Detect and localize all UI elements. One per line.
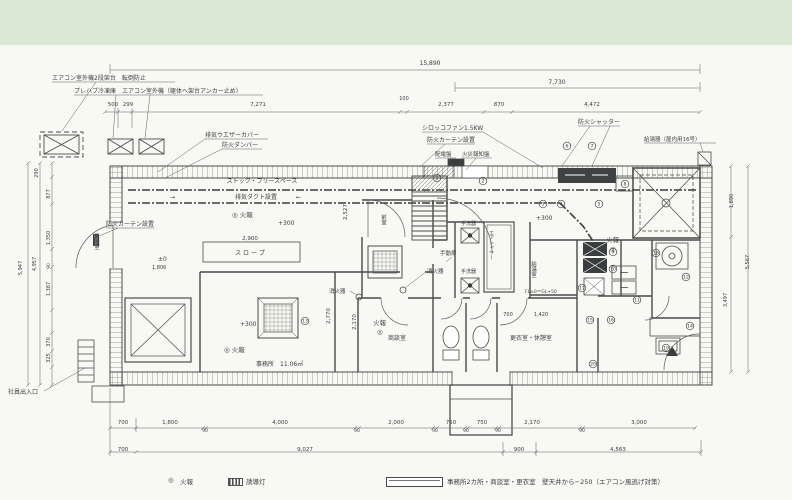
circled-number-4: 4 [557, 200, 565, 208]
dim: 2,770 [326, 308, 332, 324]
exhaust-duct-lines [128, 190, 697, 241]
fire-alarm-mark: ◎ 火報 [232, 211, 253, 219]
dim: 7,271 [250, 102, 266, 108]
svg-text:20: 20 [590, 362, 596, 368]
circled-number-3: 3 [539, 200, 547, 208]
circled-number-15: 15 [586, 316, 594, 324]
dim-overall-width: 15,890 [420, 60, 441, 67]
ac-clearance-legend-symbol [386, 477, 443, 487]
dim: 2,170 [524, 420, 540, 426]
dim: 750 [477, 420, 488, 426]
dim: 90 [46, 263, 52, 269]
dim: 900 [514, 447, 525, 453]
svg-text:18: 18 [653, 251, 659, 257]
dim: 90 [354, 428, 360, 434]
note-fire-curtain-left: 防火カーテン設置 [106, 220, 154, 228]
svg-text:9: 9 [612, 250, 615, 256]
note-staff-entrance: 社員出入口 [8, 388, 38, 396]
dim: 100 [399, 96, 409, 102]
dim: 299 [123, 102, 134, 108]
note-switchboard: 配電盤 [435, 150, 452, 158]
svg-text:7: 7 [591, 144, 594, 150]
ac-cassette-anteroom [368, 246, 402, 278]
svg-text:8: 8 [624, 182, 627, 188]
circled-number-13: 13 [301, 317, 309, 325]
dim: 9,027 [297, 447, 313, 453]
room-stock-free-space: ストック・フリースペース [227, 178, 298, 185]
note-slope: ス ロ ー プ [235, 250, 265, 257]
circled-number-17: 17 [578, 284, 586, 292]
arrow: → [170, 194, 175, 201]
level: +300 [278, 220, 295, 227]
note-fire-curtain-top: 防火カーテン設置 [427, 136, 475, 144]
fire-alarm-mark: 火報 [606, 236, 620, 244]
room-anteroom: 前室 [380, 213, 387, 226]
guide-light-legend-label: 誘導灯 [246, 476, 266, 486]
dim: 4,957 [32, 257, 38, 271]
fire-alarm-mark: ◎ [377, 328, 383, 336]
dim: 870 [494, 102, 505, 108]
room-meeting: 商談室 [388, 334, 406, 342]
svg-text:16: 16 [608, 318, 614, 324]
ac-clearance-note: 事務所2カ所・商談室・更衣室 壁天井から−250（エアコン風逃げ対策） [447, 476, 664, 486]
door-swings [76, 198, 700, 370]
fire-shutter-block [558, 168, 616, 183]
fire-alarm-legend-label: 火報 [180, 476, 193, 486]
floor-plan-drawing: エアコン室外機2段架台 転倒防止プレハブ冷凍庫 エアコン室外機（躯体へ架台アンカ… [0, 0, 792, 500]
note-water-heater: 給湯器（屋内用16号） [644, 135, 701, 143]
svg-text:1: 1 [436, 176, 439, 182]
circled-number-11: 11 [633, 296, 641, 304]
svg-text:2: 2 [482, 179, 485, 185]
dim: 325 [46, 353, 52, 363]
dim: 90 [463, 428, 469, 434]
dim: 290 [34, 168, 40, 178]
dim: 370 [46, 337, 52, 347]
level: +300 [536, 215, 553, 222]
note-fire-damper: 防火ダンパー [222, 141, 258, 149]
note-extinguisher: 消火器 [427, 267, 444, 275]
dim: 90 [202, 428, 208, 434]
dim: 877 [46, 189, 52, 199]
dim: 2,527 [343, 204, 349, 220]
svg-text:15: 15 [587, 318, 593, 324]
room-air-shower: エアシャワー [488, 230, 494, 260]
svg-text:5: 5 [598, 202, 601, 208]
circled-number-20: 20 [589, 360, 597, 368]
dim: 2,900 [242, 236, 258, 242]
svg-text:13: 13 [302, 319, 308, 325]
arrow: ← [296, 194, 301, 201]
dim: 700 [503, 312, 513, 318]
hand-basins [461, 228, 479, 293]
circled-number-19: 19 [662, 344, 670, 352]
svg-text:14: 14 [687, 324, 693, 330]
dim: 1,890 [729, 194, 735, 208]
circled-number-12: 12 [682, 273, 690, 281]
svg-text:4: 4 [560, 202, 563, 208]
dim: 2,170 [352, 314, 358, 330]
dim: 1,800 [162, 420, 178, 426]
dim: 4,472 [584, 102, 600, 108]
note-extinguisher: 消火器 [329, 287, 346, 295]
dim: 3,497 [723, 293, 729, 307]
note-exhaust-duct: 排気ダクト設置 [235, 193, 277, 201]
circled-number-14: 14 [686, 322, 694, 330]
dim: 5,947 [18, 261, 24, 275]
circled-number-16: 16 [607, 316, 615, 324]
svg-text:10: 10 [610, 267, 616, 273]
svg-text:12: 12 [683, 275, 689, 281]
exterior-stair-pit [450, 385, 512, 435]
note-prefab-freezer: プレハブ冷凍庫 エアコン室外機（躯体へ架台アンカー止め） [74, 87, 242, 95]
dim: 90 [579, 428, 585, 434]
dim: 90 [432, 428, 438, 434]
room-office: 事務所 11.06㎡ [256, 360, 303, 368]
svg-text:3: 3 [542, 202, 545, 208]
dim: 1,806 [152, 265, 166, 271]
circled-number-6: 6 [563, 142, 571, 150]
dim: 4,563 [610, 447, 626, 453]
note-manual-door: 手動扉 [440, 249, 457, 257]
room-kitchenette: 給湯室 [530, 260, 537, 278]
svg-text:6: 6 [566, 144, 569, 150]
dim: 1,387 [46, 282, 52, 296]
level: +300 [240, 321, 257, 328]
stairs [412, 176, 447, 240]
note-hand-basin: 手洗器 [461, 268, 476, 275]
circled-number-7: 7 [588, 142, 596, 150]
dim: 750 [446, 420, 457, 426]
circled-number-5: 5 [595, 200, 603, 208]
right-room-fixtures [612, 243, 700, 356]
circled-number-8: 8 [621, 180, 629, 188]
room-locker-rest: 更衣室・休憩室 [510, 334, 552, 342]
dim: 1,420 [534, 312, 548, 318]
fire-alarm-mark: 火報 [373, 319, 387, 327]
note-fire-shutter: 防火シャッター [578, 118, 620, 126]
fire-alarm-legend-symbol: ◎ [168, 476, 174, 484]
svg-text:11: 11 [634, 298, 640, 304]
svg-text:19: 19 [663, 346, 669, 352]
dim: 3,000 [631, 420, 647, 426]
dim: 700 [118, 420, 129, 426]
note-hand-basin: 手洗器 [461, 220, 476, 227]
dim: 2,000 [388, 420, 404, 426]
dim: 90 [495, 428, 501, 434]
guide-light-legend-symbol [228, 478, 243, 486]
dim: 500 [108, 102, 119, 108]
dim: 4,000 [272, 420, 288, 426]
svg-text:17: 17 [579, 286, 585, 292]
dim: 7,730 [548, 79, 565, 86]
dim: 5,567 [745, 255, 751, 269]
freezer-room-unit [125, 298, 191, 362]
fire-alarm-mark: ◎ 火報 [224, 346, 245, 354]
level: ±0 [158, 256, 167, 263]
dim: 2,377 [438, 102, 454, 108]
fan-units [583, 242, 607, 295]
note-ac-outdoor-stand: エアコン室外機2段架台 転倒防止 [52, 74, 146, 82]
ac-cassette-office [258, 298, 298, 338]
water-heater-unit [698, 152, 711, 165]
dim: 700 [118, 447, 129, 453]
note-exhaust-weather-cover: 排気ウエザーカバー [205, 131, 259, 139]
note-sirocco-fan: シロッコファン1.5KW [422, 125, 483, 132]
note-fire-alarm-panel: 火災報知盤 [462, 150, 490, 158]
level-note: FL±0＝GL+50 [525, 289, 557, 295]
dim: 1,350 [46, 231, 52, 245]
room-windbreak: 風除室 [93, 233, 100, 250]
legend: ◎ 火報 誘導灯 事務所2カ所・商談室・更衣室 壁天井から−250（エアコン風逃… [0, 470, 792, 492]
